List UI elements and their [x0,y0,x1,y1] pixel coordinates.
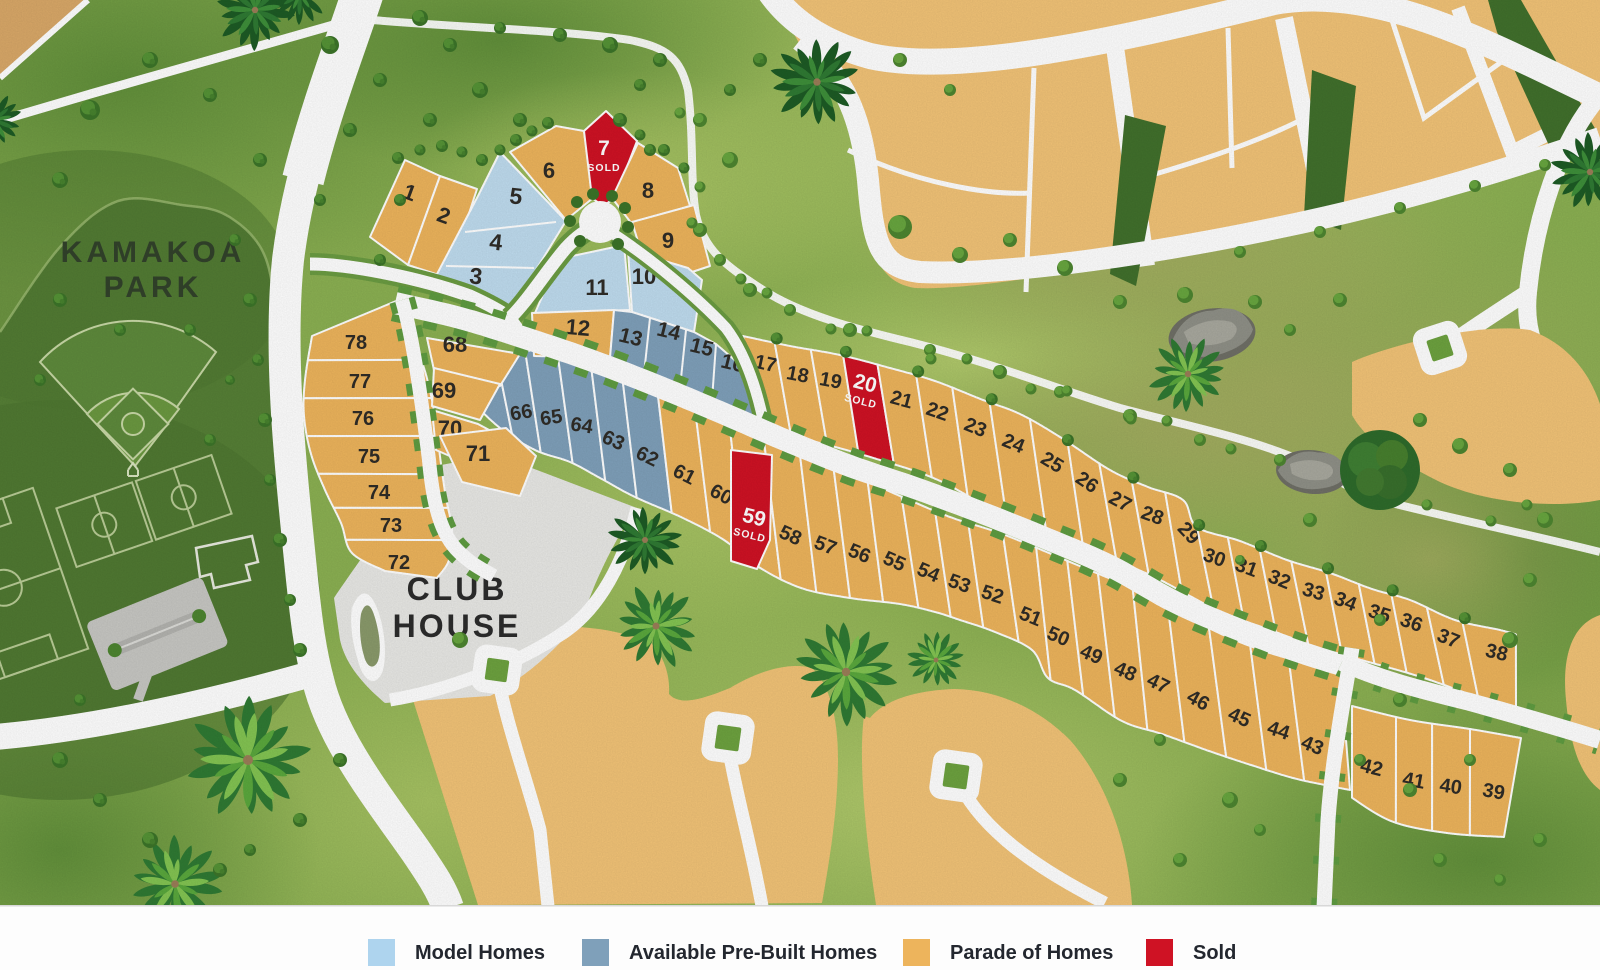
svg-text:Parade of Homes: Parade of Homes [950,942,1113,964]
svg-text:Model Homes: Model Homes [415,942,545,964]
svg-text:Sold: Sold [1193,942,1236,964]
svg-text:Available Pre-Built Homes: Available Pre-Built Homes [629,942,877,964]
